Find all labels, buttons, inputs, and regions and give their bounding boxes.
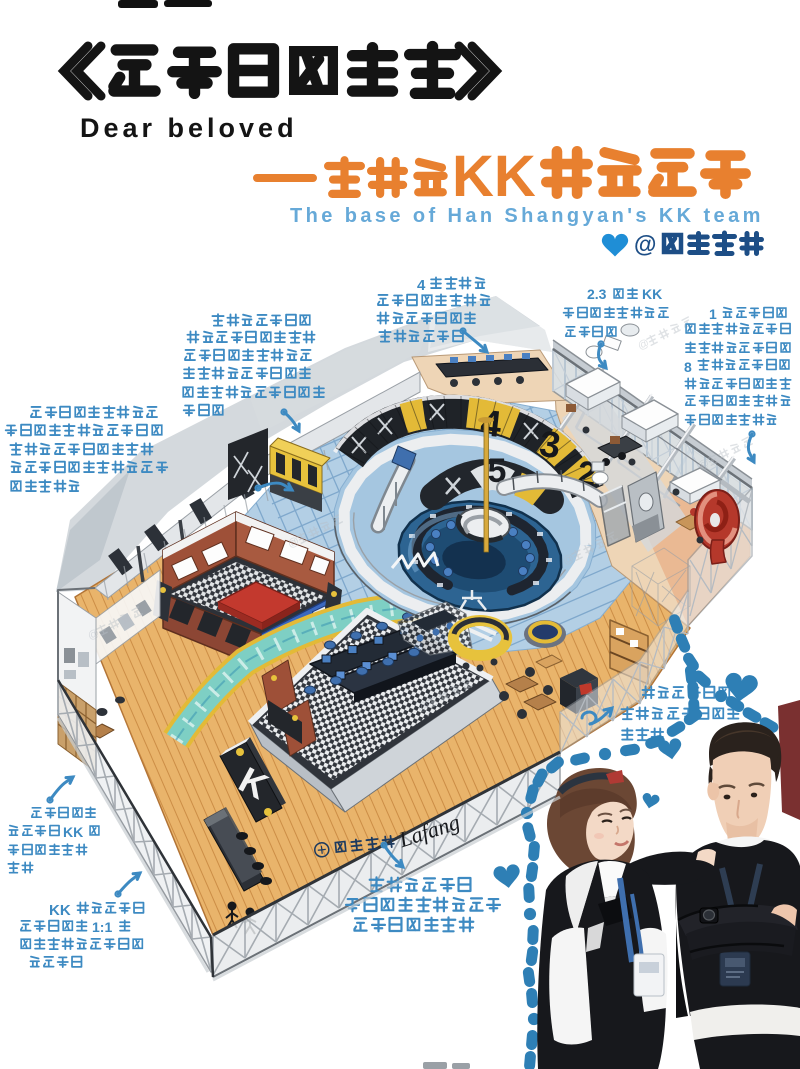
- svg-text:8: 8: [684, 359, 692, 375]
- svg-text:KK: KK: [452, 144, 536, 209]
- svg-text:2.3: 2.3: [587, 286, 607, 302]
- svg-text:KK: KK: [49, 902, 71, 919]
- svg-text:The base of Han Shangyan's KK: The base of Han Shangyan's KK team: [290, 205, 764, 227]
- svg-text:Dear beloved: Dear beloved: [80, 113, 298, 143]
- svg-text:KK: KK: [63, 824, 83, 840]
- svg-text:1:1: 1:1: [92, 919, 112, 935]
- svg-text:@: @: [634, 231, 656, 257]
- svg-text:1: 1: [709, 306, 717, 322]
- svg-text:KK: KK: [642, 286, 662, 302]
- svg-text:4: 4: [417, 277, 426, 294]
